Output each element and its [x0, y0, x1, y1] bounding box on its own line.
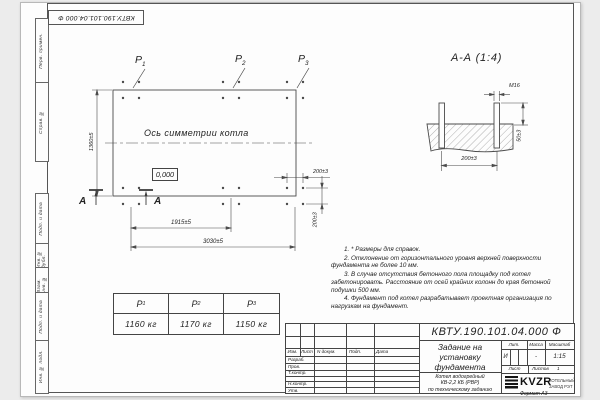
load-table-header-p1: Р1	[114, 294, 169, 314]
tb-title-line2: установку	[419, 353, 501, 361]
tb-subtitle-line2: КВ-2,2 КБ (РВР)	[419, 381, 501, 386]
manufacturer-logo-text: KVZR	[520, 377, 552, 388]
tb-row-utv: Утв.	[288, 389, 298, 394]
note-1: 1. * Размеры для справок.	[331, 246, 577, 254]
tb-scale-value: 1:15	[545, 354, 574, 360]
point-label-p3: Р3	[298, 54, 309, 67]
frame-column-inv-podl: Инв. № подл.	[35, 340, 50, 394]
point-label-p1: Р1	[135, 55, 146, 68]
tb-col-ndocum: N докум.	[317, 350, 336, 355]
manufacturer-caption-line2: ЗАВОД РЭТ	[549, 385, 573, 389]
section-title: А-А (1:4)	[451, 53, 502, 64]
tb-sheets-label: Листов	[532, 367, 549, 372]
tb-col-data: Дата	[376, 350, 388, 355]
load-value-p3: 1150 кг	[224, 314, 279, 334]
frame-column-perv-primen: Перв. примен.	[35, 18, 50, 84]
tb-lit-value: И	[501, 354, 510, 360]
note-4: 4. Фундамент под котел разрабатывает про…	[331, 295, 577, 310]
bolt-thread-label: М16	[509, 84, 520, 90]
technical-notes: 1. * Размеры для справок. 2. Отклонение …	[331, 246, 577, 312]
frame-column-inv-dubl: Инв. № дубл.	[35, 243, 50, 269]
dim-label-3030: 3030±5	[198, 239, 228, 245]
section-letter-left: А	[79, 197, 86, 207]
dim-label-50: 50±3	[517, 123, 522, 149]
frame-column-label: Подп. и дата	[39, 202, 44, 236]
frame-column-label: Справ. №	[39, 110, 44, 134]
load-p1-index: 1	[143, 301, 146, 307]
p3-index: 3	[305, 60, 309, 67]
tb-mass-header: Масса	[527, 343, 545, 348]
tb-row-nkontr: Н.контр.	[288, 382, 307, 387]
frame-column-sprav-n: Справ. №	[35, 82, 50, 162]
frame-column-vzam-inv: Взам. инв. №	[35, 267, 50, 294]
tb-title-line3: фундамента	[419, 363, 501, 371]
dim-label-1915: 1915±5	[166, 220, 196, 226]
tb-row-prov: Пров.	[288, 365, 300, 370]
frame-column-label: Инв. № подл.	[39, 350, 44, 383]
tb-subtitle-line1: Котел водогрейный	[419, 375, 501, 380]
load-table: Р1 Р2 Р3 1160 кг 1170 кг 1150 кг	[113, 293, 280, 335]
dim-label-200-vertical: 200±3	[313, 207, 318, 233]
tb-sheet-label: Лист	[501, 367, 528, 372]
tb-title-line1: Задание на	[419, 343, 501, 351]
load-table-header-p2: Р2	[169, 294, 224, 314]
p3-symbol: Р	[298, 53, 305, 65]
frame-column-label: Взам. инв. №	[37, 268, 47, 293]
note-2: 2. Отклонение от горизонтального уровня …	[331, 255, 577, 270]
level-mark-value: 0,000	[156, 171, 174, 178]
load-p2-index: 2	[198, 301, 201, 307]
tb-row-razrab: Разраб.	[288, 358, 305, 363]
tb-subtitle-line3: по техническому заданию	[419, 388, 501, 393]
tb-row-tkontr: Т.контр.	[288, 371, 307, 376]
frame-column-podp-data-2: Подп. и дата	[35, 292, 50, 342]
p2-index: 2	[242, 60, 246, 67]
doc-number-stamp-text: КВТУ.190.101.04.000 Ф	[58, 14, 135, 21]
level-mark: 0,000	[152, 168, 178, 181]
tb-sheets-value: 1	[557, 367, 560, 372]
dim-label-200-horizontal: 200±3	[313, 170, 328, 175]
note-3: 3. В случае отсутствия бетонного пола пл…	[331, 271, 577, 294]
dim-label-1360: 1360±5	[90, 128, 96, 156]
tb-col-list: Лист	[301, 350, 313, 355]
load-table-header-p3: Р3	[224, 294, 279, 314]
section-letter-right: А	[154, 197, 161, 207]
title-block: Изм. Лист N докум. Подп. Дата Разраб. Пр…	[285, 323, 575, 394]
frame-column-label: Инв. № дубл.	[37, 244, 47, 268]
p2-symbol: Р	[235, 53, 242, 65]
tb-mass-value: -	[527, 354, 545, 360]
load-value-p1: 1160 кг	[114, 314, 169, 334]
doc-number-stamp: КВТУ.190.101.04.000 Ф	[48, 10, 144, 25]
tb-doc-number: КВТУ.190.101.04.000 Ф	[419, 327, 574, 338]
point-label-p2: Р2	[235, 54, 246, 67]
tb-scale-header: Масштаб	[545, 343, 574, 348]
frame-column-label: Подп. и дата	[39, 300, 44, 334]
manufacturer-logo-icon	[505, 376, 518, 389]
tb-col-izm: Изм.	[288, 350, 298, 355]
tb-col-podp: Подп.	[349, 350, 361, 355]
frame-column-podp-data-1: Подп. и дата	[35, 193, 50, 245]
load-p3-index: 3	[253, 301, 256, 307]
format-note: Формат А3	[520, 392, 547, 397]
manufacturer-caption-line1: КОТЕЛЬНЫЙ	[549, 379, 575, 383]
frame-column-label: Перв. примен.	[39, 33, 44, 69]
tb-lit-header: Лит.	[501, 343, 527, 348]
load-value-p2: 1170 кг	[169, 314, 224, 334]
axis-of-symmetry-label: Ось симметрии котла	[144, 129, 249, 138]
p1-index: 1	[142, 61, 146, 68]
dim-label-200-section: 200±3	[455, 157, 483, 163]
page-background: Перв. примен. Справ. № Подп. и дата Инв.…	[0, 0, 600, 400]
p1-symbol: Р	[135, 54, 142, 66]
